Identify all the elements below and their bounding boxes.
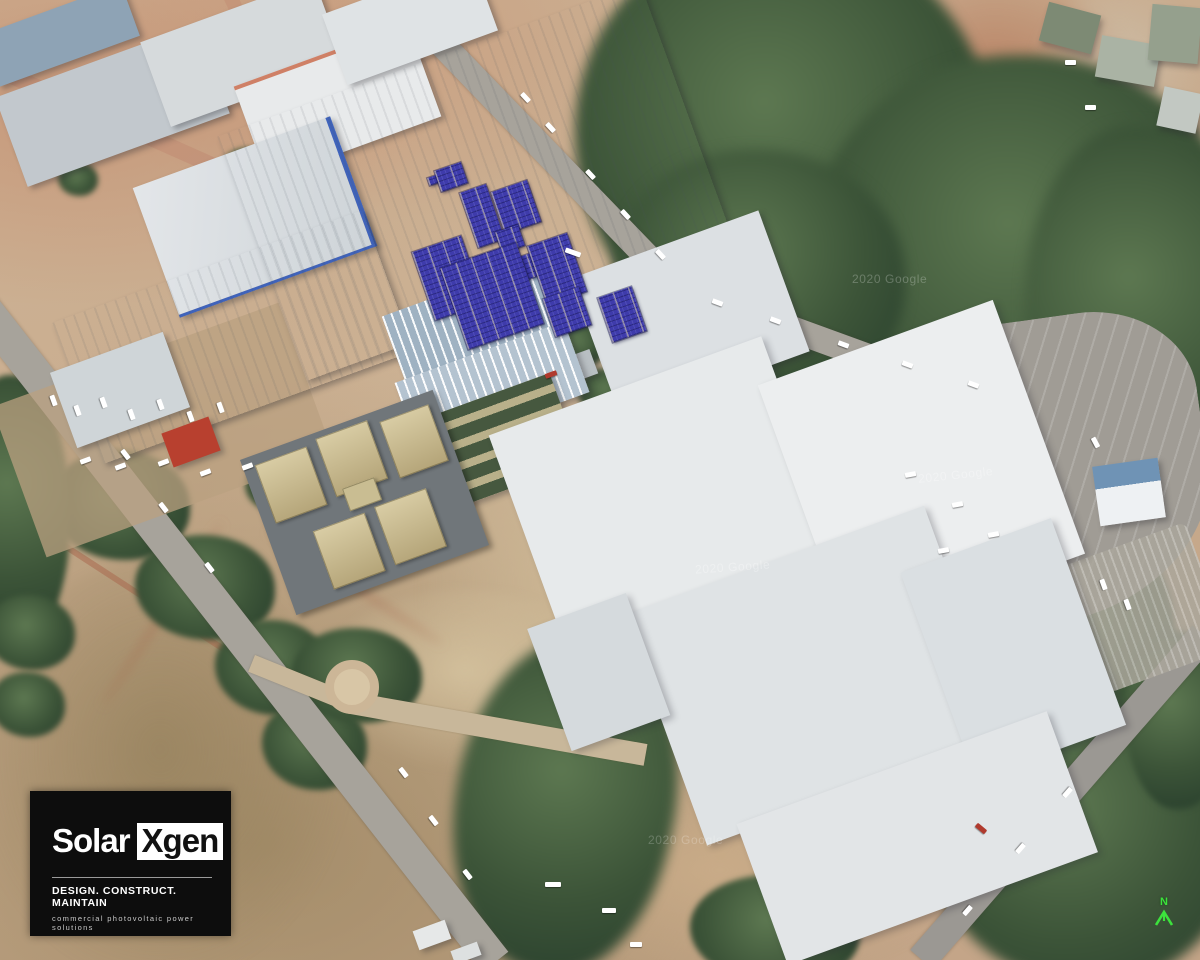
- vehicle: [769, 316, 781, 324]
- vehicle: [127, 408, 135, 420]
- vehicle: [1099, 578, 1107, 590]
- vehicle: [975, 823, 987, 835]
- vehicle: [520, 92, 531, 103]
- vehicle: [630, 942, 642, 947]
- north-arrow-icon: [1151, 907, 1177, 927]
- vehicle: [79, 456, 91, 464]
- logo-brand-secondary: Xgen: [137, 823, 224, 860]
- vehicle: [73, 404, 81, 416]
- logo-brand-primary: Solar: [52, 822, 130, 860]
- vehicle: [545, 122, 556, 133]
- vehicle: [905, 471, 917, 478]
- vehicle: [901, 360, 913, 368]
- vehicle: [1085, 105, 1096, 110]
- vehicle: [545, 882, 561, 887]
- solarxgen-site-aerial-map: 2020 Google 2020 Google 2020 Google 2020…: [0, 0, 1200, 960]
- vehicle: [620, 209, 631, 220]
- google-watermark: 2020 Google: [852, 272, 927, 286]
- vehicle: [967, 380, 979, 388]
- vehicle: [565, 247, 582, 257]
- vehicle: [398, 767, 409, 779]
- vehicle: [186, 410, 194, 422]
- logo-tagline: DESIGN. CONSTRUCT. MAINTAIN: [52, 885, 231, 909]
- vehicle: [837, 340, 849, 348]
- vehicle: [99, 396, 107, 408]
- vehicle: [585, 169, 596, 180]
- vehicle: [988, 531, 1000, 538]
- vehicle: [1091, 436, 1101, 448]
- vehicle: [938, 547, 950, 554]
- vehicle: [158, 502, 169, 514]
- vehicle: [114, 462, 126, 470]
- vehicle: [1123, 598, 1131, 610]
- north-indicator: N: [1150, 897, 1178, 931]
- logo-divider: [52, 877, 212, 878]
- vehicle: [711, 298, 723, 306]
- vehicle: [962, 905, 973, 917]
- vehicle: [428, 815, 439, 827]
- vehicle: [1065, 60, 1076, 65]
- vehicle: [204, 562, 215, 574]
- logo-subtitle: commercial photovoltaic power solutions: [52, 914, 231, 932]
- vehicle: [216, 401, 224, 413]
- vehicle: [602, 908, 616, 913]
- vehicle: [1062, 787, 1073, 799]
- vehicle: [120, 449, 131, 461]
- vehicle: [655, 249, 666, 260]
- vehicle: [157, 458, 169, 466]
- vehicle: [49, 394, 57, 406]
- vehicle: [545, 370, 558, 379]
- north-label: N: [1150, 897, 1178, 907]
- google-watermark: 2020 Google: [648, 833, 723, 847]
- vehicle: [241, 462, 253, 470]
- vehicle: [199, 468, 211, 476]
- vehicle: [952, 501, 964, 508]
- vehicle: [462, 869, 473, 881]
- vehicle: [1015, 843, 1026, 855]
- solarxgen-logo: Solar Xgen DESIGN. CONSTRUCT. MAINTAIN c…: [30, 791, 231, 936]
- vehicle: [156, 398, 164, 410]
- logo-brand: Solar Xgen: [52, 819, 231, 863]
